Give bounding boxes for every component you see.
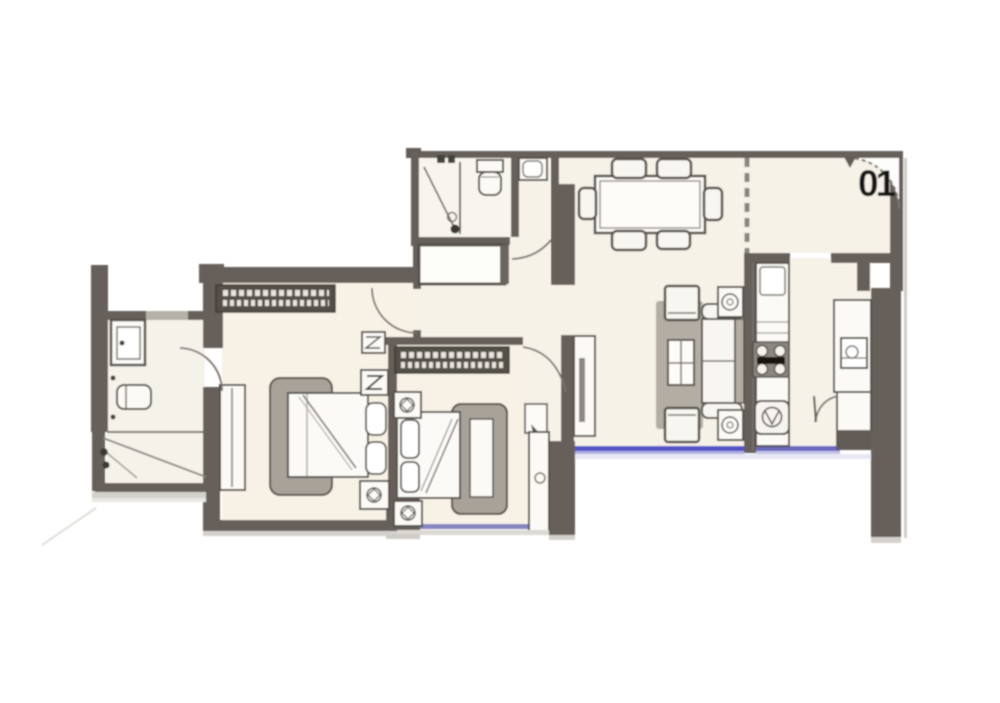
svg-text:01: 01 xyxy=(858,163,896,204)
